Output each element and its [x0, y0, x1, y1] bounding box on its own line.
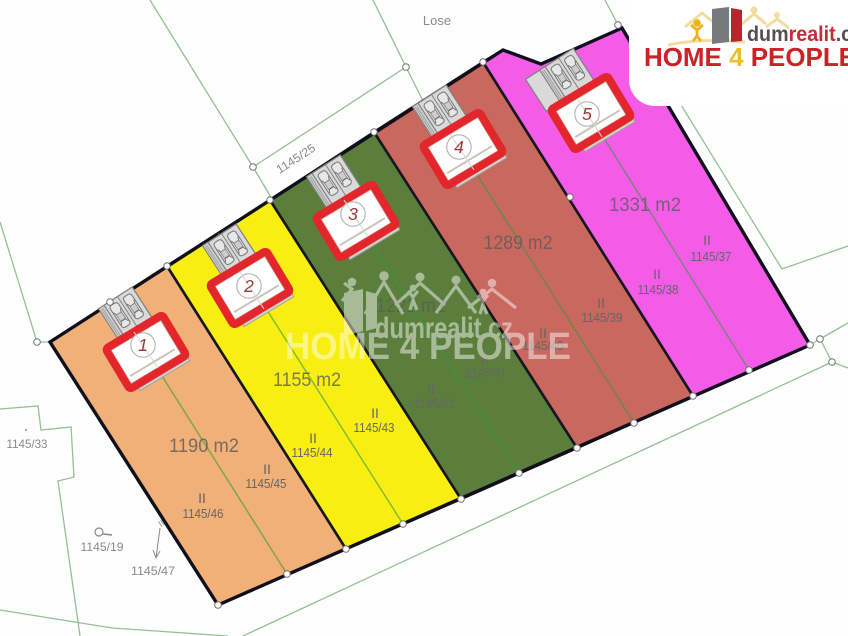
svg-text:II: II: [427, 381, 435, 397]
svg-text:1145/44: 1145/44: [292, 446, 333, 460]
svg-text:1: 1: [138, 335, 148, 355]
svg-text:1145/33: 1145/33: [7, 437, 48, 451]
svg-text:HOME 4 PEOPLE: HOME 4 PEOPLE: [644, 42, 848, 72]
svg-text:1331 m2: 1331 m2: [609, 194, 681, 216]
svg-text:II: II: [263, 461, 271, 477]
svg-text:II: II: [198, 490, 206, 506]
svg-text:3: 3: [348, 204, 358, 224]
svg-text:II: II: [597, 295, 605, 311]
svg-text:II: II: [653, 266, 661, 282]
svg-text:1190 m2: 1190 m2: [169, 435, 239, 457]
svg-text:1145/43: 1145/43: [354, 421, 395, 435]
svg-text:1145/47: 1145/47: [131, 564, 175, 578]
svg-text:1145/41: 1145/41: [466, 366, 507, 380]
svg-text:HOME 4 PEOPLE: HOME 4 PEOPLE: [285, 326, 571, 368]
svg-text:1155 m2: 1155 m2: [273, 369, 341, 391]
svg-text:2: 2: [243, 276, 254, 296]
svg-text:5: 5: [582, 104, 592, 124]
svg-text:II: II: [309, 430, 317, 446]
svg-text:1145/37: 1145/37: [691, 250, 732, 264]
svg-text:1145/42: 1145/42: [414, 397, 455, 411]
svg-text:4: 4: [454, 137, 464, 157]
svg-text:Lose: Lose: [423, 13, 451, 28]
svg-text:1145/39: 1145/39: [582, 311, 623, 325]
svg-text:II: II: [371, 405, 379, 421]
svg-text:II: II: [703, 232, 711, 248]
svg-text:1145/19: 1145/19: [81, 540, 124, 554]
svg-text:1145/45: 1145/45: [246, 477, 287, 491]
svg-text:1145/46: 1145/46: [183, 507, 224, 521]
svg-text:1289 m2: 1289 m2: [484, 232, 553, 254]
svg-text:1145/38: 1145/38: [638, 283, 679, 297]
